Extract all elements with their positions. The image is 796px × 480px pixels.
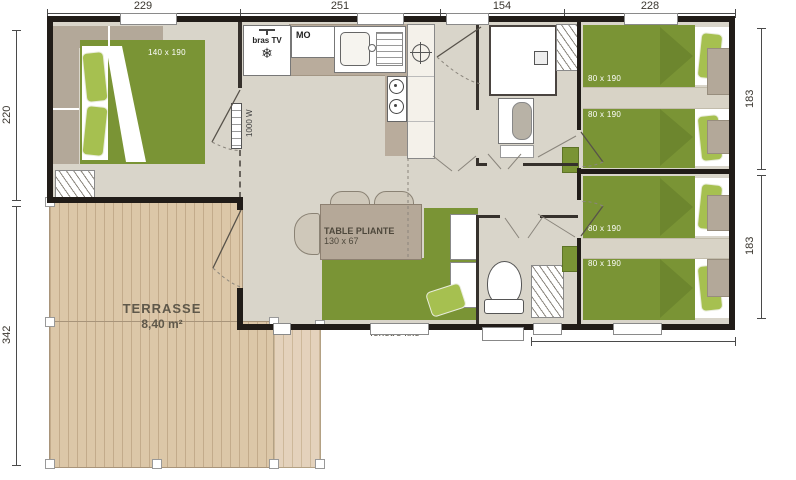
toilet-tank: [484, 299, 524, 314]
single-bed-label: 80 x 190: [588, 224, 621, 233]
vanity-sink: [512, 102, 532, 140]
dim-line-left-1: [16, 30, 17, 200]
sink-bowl: [340, 32, 370, 66]
wardrobe-left: [53, 48, 79, 164]
microwave-label: MO: [292, 27, 335, 40]
dim-left-2: 342: [1, 310, 14, 360]
dim-top-4: 228: [620, 0, 680, 12]
wall-left: [47, 16, 53, 203]
vent-icon: [412, 44, 430, 62]
terrace-post: [315, 459, 325, 469]
shelving-hatch: [55, 170, 95, 198]
wall-bedrooms-west-a: [577, 21, 581, 130]
window-bedroom-north: [120, 13, 177, 25]
table-label: TABLE PLIANTE 130 x 67: [324, 226, 394, 246]
wall-bath-west-a: [476, 21, 479, 110]
dim-line-left-2: [16, 206, 17, 465]
floor-plan: 229 251 154 228 220 342 183 183 253 TERR…: [0, 0, 796, 480]
single-bed-label: 80 x 190: [588, 110, 621, 119]
wall-bath-south-a: [476, 163, 487, 166]
wardrobe-divider: [53, 108, 79, 110]
wall-bedroom-south: [47, 197, 243, 203]
dim-line-bottom: [531, 341, 735, 342]
wardrobe-divider: [108, 26, 110, 48]
window-kitchen-north: [357, 13, 404, 25]
wall-bedroom-east-dashed: [239, 150, 241, 198]
sofa-storage: [450, 214, 478, 260]
single-bed-label: 80 x 190: [588, 259, 621, 268]
sink-unit: [334, 26, 406, 73]
window-fixed-south: [370, 323, 429, 335]
dim-right-1: 183: [744, 75, 757, 123]
microwave: MO: [291, 26, 336, 58]
tv-label: bras TV: [244, 36, 290, 45]
dim-line-right-2: [761, 175, 762, 318]
bedside-shelf: [583, 238, 733, 259]
burner-icon: [389, 79, 404, 94]
chair-side: [294, 213, 320, 255]
wall-bedroom-east: [238, 21, 242, 88]
fridge-tv-unit: bras TV ❄: [243, 25, 291, 76]
wall-west-lower-a: [237, 197, 243, 210]
double-bed-label: 140 x 190: [148, 48, 186, 57]
terrace-area-label: 8,40 m²: [100, 317, 224, 331]
tv-bracket-icon: [259, 29, 275, 36]
window-hall-north: [446, 13, 489, 25]
terrace-deck-lower: [49, 321, 275, 468]
terrace-post: [269, 459, 279, 469]
terrace-label: TERRASSE: [100, 301, 224, 316]
radiator: [231, 103, 242, 149]
dim-right-2: 183: [744, 222, 757, 270]
dim-top-1: 229: [113, 0, 173, 12]
dim-line-right-1: [761, 28, 762, 169]
window-living-south-small: [273, 323, 291, 335]
entry-step: [482, 327, 524, 341]
wall-bedrooms-west-c: [577, 238, 581, 330]
terrace-post: [45, 459, 55, 469]
dim-top-2: 251: [310, 0, 370, 12]
terrace-post: [45, 317, 55, 327]
window-hall-south: [533, 323, 562, 335]
faucet-icon: [368, 44, 376, 52]
heater-label: 1000 W: [245, 97, 256, 149]
terrace-post: [152, 459, 162, 469]
wall-wc-west: [476, 215, 479, 324]
wall-bath-south-b: [523, 163, 578, 166]
wall-wc-north-a: [476, 215, 500, 218]
wardrobe-hatch-wc: [531, 265, 564, 318]
snowflake-icon: ❄: [244, 45, 290, 61]
vanity-shelf: [500, 145, 534, 158]
window-bedroom3-south: [613, 323, 662, 335]
window-bedroom2-north: [624, 13, 678, 25]
shower-drain: [534, 51, 548, 65]
dim-top-3: 154: [472, 0, 532, 12]
drainer: [376, 32, 403, 66]
burner-icon: [389, 99, 404, 114]
terrace-deck-extension: [273, 324, 321, 468]
wall-wc-north-b: [540, 215, 578, 218]
wall-bedrooms-divider: [581, 169, 735, 174]
single-bed-label: 80 x 190: [588, 74, 621, 83]
dim-left-1: 220: [1, 90, 14, 140]
